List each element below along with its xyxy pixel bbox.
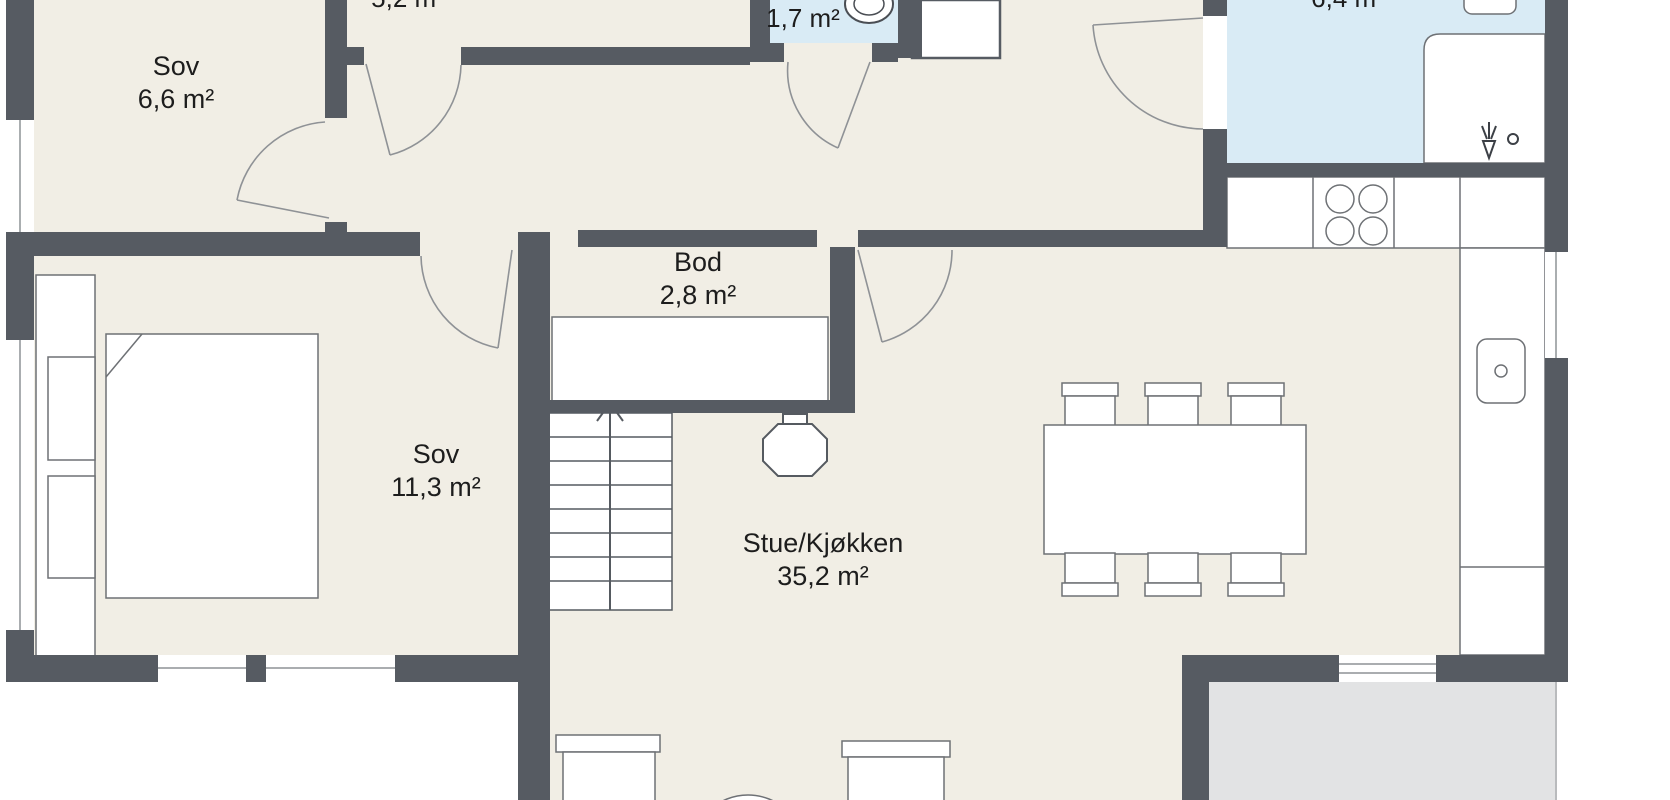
armchair-seat — [848, 757, 944, 800]
floor-plan: Sov 6,6 m² Sov 11,3 m² Bod 2,8 m² Stue/K… — [0, 0, 1670, 800]
pillow — [48, 476, 95, 578]
armchair-back — [842, 741, 950, 757]
chair-back — [1145, 383, 1201, 396]
room-label-bathroom: 6,4 m² — [1311, 0, 1385, 15]
wall-bottom — [395, 655, 530, 682]
armchair-seat — [563, 752, 655, 800]
room-label-bedroom-large: Sov 11,3 m² — [391, 438, 481, 504]
room-label-storage: Bod 2,8 m² — [660, 246, 737, 312]
room-label-wc: 1,7 m² — [766, 2, 840, 35]
room-name: Stue/Kjøkken — [743, 527, 904, 560]
room-name: Bod — [660, 246, 737, 279]
chair-seat — [1148, 396, 1198, 426]
wardrobe — [912, 0, 1000, 58]
wall — [6, 232, 420, 256]
wall-bottom — [6, 655, 158, 682]
wall — [461, 47, 750, 65]
wall — [1203, 0, 1227, 16]
wall-storage-bottom — [548, 400, 855, 413]
chair-back — [1145, 583, 1201, 596]
wall-right — [1545, 0, 1568, 252]
chair-back — [1062, 583, 1118, 596]
dining-set — [1044, 383, 1306, 596]
room-name: Sov — [391, 438, 481, 471]
dining-table — [1044, 425, 1306, 554]
room-area: 35,2 m² — [743, 560, 904, 593]
wall-bottom — [246, 655, 266, 682]
floor-plan-drawing — [0, 0, 1670, 800]
wall — [898, 0, 922, 58]
pillow — [48, 357, 95, 460]
room-area: 6,6 m² — [138, 83, 215, 116]
wall-bottom — [1182, 655, 1339, 682]
room-area: 5,2 m² — [371, 0, 445, 15]
window-door — [1339, 655, 1436, 682]
wall — [1203, 129, 1227, 247]
wall-bottom — [1436, 655, 1568, 682]
wall-living-top — [858, 230, 1203, 247]
wall-terrace — [1182, 682, 1209, 800]
room-label-living-kitchen: Stue/Kjøkken 35,2 m² — [743, 527, 904, 593]
chair-seat — [1231, 396, 1281, 426]
room-label-bedroom-small: Sov 6,6 m² — [138, 50, 215, 116]
wall — [770, 43, 784, 62]
wall-storage-top — [578, 230, 817, 247]
chair-back — [1062, 383, 1118, 396]
kitchen-sink — [1477, 339, 1525, 403]
chair-seat — [1065, 553, 1115, 583]
armchair-back — [556, 735, 660, 752]
wall-bathroom-bottom — [1203, 163, 1545, 177]
chair-seat — [1148, 553, 1198, 583]
room-area: 6,4 m² — [1311, 0, 1385, 15]
mattress — [106, 334, 318, 598]
wall — [337, 47, 364, 65]
chair-seat — [1231, 553, 1281, 583]
terrace — [1209, 682, 1557, 800]
wall-storage-right — [830, 247, 855, 413]
chair-back — [1228, 383, 1284, 396]
room-label-top-room: 5,2 m² — [371, 0, 445, 15]
wall-stairwell — [518, 232, 550, 800]
counter-right-run — [1460, 248, 1545, 655]
chair-back — [1228, 583, 1284, 596]
room-area: 11,3 m² — [391, 471, 481, 504]
chair-seat — [1065, 396, 1115, 426]
wall-right — [1545, 358, 1568, 682]
basin — [1464, 0, 1516, 14]
room-area: 1,7 m² — [766, 2, 840, 35]
wall — [872, 43, 898, 62]
room-area: 2,8 m² — [660, 279, 737, 312]
room-name: Sov — [138, 50, 215, 83]
storage-shelf — [552, 317, 828, 401]
bed-frame — [36, 275, 95, 664]
